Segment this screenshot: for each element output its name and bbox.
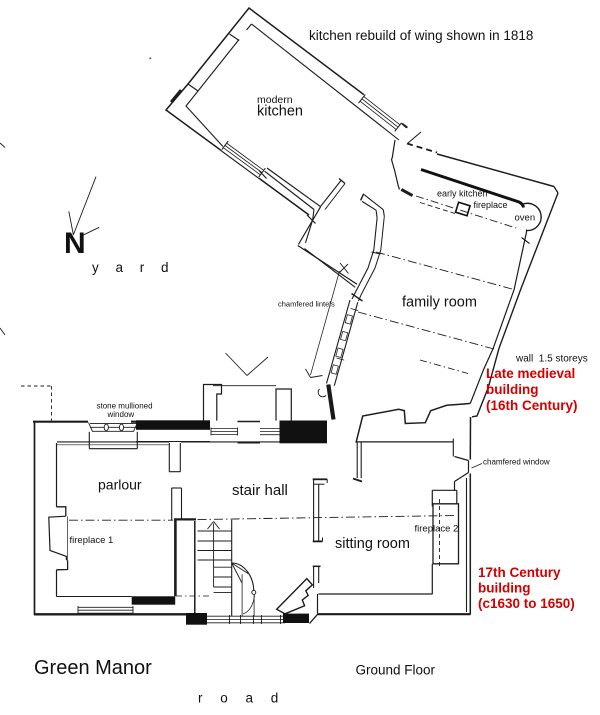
- svg-text:chamfered window: chamfered window: [483, 458, 550, 467]
- svg-text:stair hall: stair hall: [232, 482, 288, 499]
- svg-text:kitchen: kitchen: [257, 104, 303, 120]
- svg-text:oven: oven: [515, 213, 536, 224]
- svg-text:building: building: [486, 382, 538, 397]
- svg-text:y a r d: y a r d: [92, 260, 175, 275]
- svg-text:Ground Floor: Ground Floor: [356, 663, 436, 678]
- svg-text:fireplace 2: fireplace 2: [415, 524, 459, 535]
- svg-text:Green Manor: Green Manor: [34, 657, 152, 679]
- svg-text:fireplace 1: fireplace 1: [70, 535, 114, 546]
- svg-text:kitchen rebuild of wing shown: kitchen rebuild of wing shown in 1818: [309, 28, 533, 43]
- svg-text:building: building: [478, 581, 530, 596]
- svg-text:window: window: [107, 410, 135, 419]
- svg-text:sitting room: sitting room: [335, 536, 410, 552]
- svg-text:fireplace: fireplace: [474, 200, 508, 210]
- svg-text:family room: family room: [402, 295, 477, 311]
- svg-text:early kitchen: early kitchen: [437, 189, 488, 199]
- svg-text:17th Century: 17th Century: [478, 565, 561, 580]
- svg-text:(c1630 to 1650): (c1630 to 1650): [478, 596, 575, 611]
- svg-text:r o a d: r o a d: [198, 691, 285, 706]
- svg-text:Late medieval: Late medieval: [486, 366, 575, 381]
- svg-text:parlour: parlour: [98, 477, 142, 493]
- svg-text:chamfered lintels: chamfered lintels: [278, 300, 335, 309]
- svg-text:wall 1.5 storeys: wall 1.5 storeys: [515, 354, 588, 365]
- svg-text:N: N: [64, 227, 86, 260]
- svg-text:(16th Century): (16th Century): [486, 398, 578, 413]
